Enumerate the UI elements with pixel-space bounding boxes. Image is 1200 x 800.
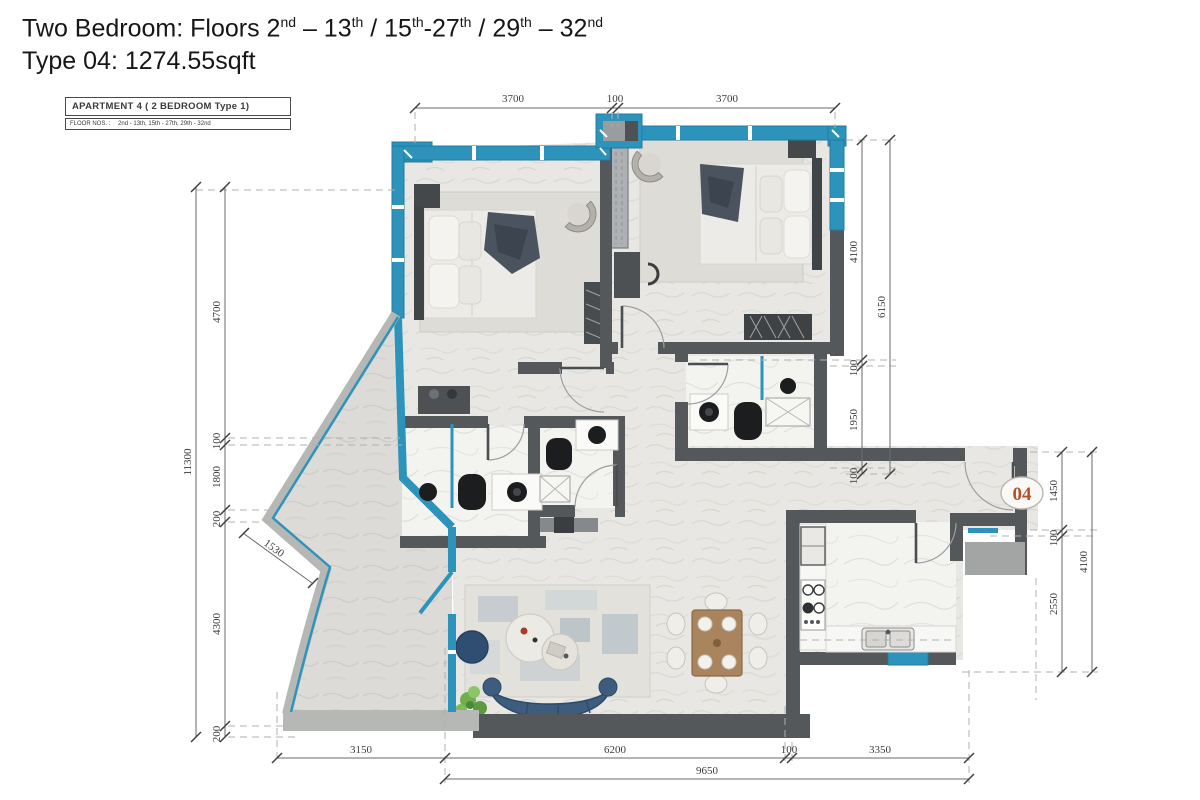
pouf — [456, 631, 488, 663]
page: { "header": { "title_line1_segments": [ … — [0, 0, 1200, 800]
floor-plan-svg: 3700 100 3700 4700 100 1800 200 4300 200… — [0, 0, 1200, 800]
unit-badge: 04 — [1001, 477, 1043, 509]
svg-text:4700: 4700 — [211, 301, 223, 324]
svg-text:11300: 11300 — [182, 448, 194, 476]
hall-console — [532, 517, 598, 533]
hob — [801, 580, 825, 630]
svg-text:200: 200 — [211, 510, 223, 527]
facade-column — [596, 114, 642, 148]
svg-text:4100: 4100 — [1078, 551, 1090, 574]
svg-text:6150: 6150 — [876, 296, 888, 319]
svg-text:1800: 1800 — [211, 466, 223, 489]
svg-text:1530: 1530 — [261, 537, 286, 560]
svg-text:3350: 3350 — [869, 744, 892, 756]
svg-text:100: 100 — [781, 744, 798, 756]
unit-number: 04 — [1013, 484, 1033, 505]
svg-text:1950: 1950 — [848, 409, 860, 432]
entry-ledge — [965, 542, 1025, 575]
svg-text:200: 200 — [211, 725, 223, 742]
svg-text:100: 100 — [211, 432, 223, 449]
svg-text:2550: 2550 — [1048, 593, 1060, 616]
svg-text:100: 100 — [607, 93, 624, 105]
dresser-bedroom1 — [418, 386, 470, 414]
svg-text:3700: 3700 — [716, 93, 739, 105]
svg-text:100: 100 — [1048, 529, 1060, 546]
wardrobe-bedroom2 — [744, 314, 812, 340]
svg-text:1450: 1450 — [1048, 480, 1060, 503]
svg-text:6200: 6200 — [604, 744, 627, 756]
svg-text:4300: 4300 — [211, 613, 223, 636]
svg-text:4100: 4100 — [848, 241, 860, 264]
svg-text:3150: 3150 — [350, 744, 373, 756]
svg-text:9650: 9650 — [696, 765, 719, 777]
wall-parapet — [283, 710, 479, 731]
svg-text:100: 100 — [848, 359, 860, 376]
svg-text:100: 100 — [848, 467, 860, 484]
svg-text:3700: 3700 — [502, 93, 525, 105]
sink — [862, 628, 914, 650]
